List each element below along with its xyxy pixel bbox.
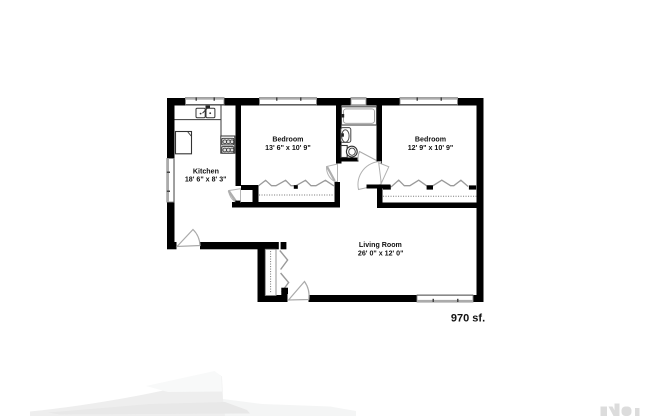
svg-text:26' 0" x 12' 0": 26' 0" x 12' 0" [358,250,404,258]
svg-text:18' 6" x 8' 3": 18' 6" x 8' 3" [185,175,227,183]
svg-text:Living Room: Living Room [359,241,402,249]
svg-text:Kitchen: Kitchen [193,167,219,175]
svg-text:970 sf.: 970 sf. [451,313,485,325]
svg-text:12' 9" x 10' 9": 12' 9" x 10' 9" [408,144,454,152]
svg-text:Bedroom: Bedroom [272,136,303,144]
svg-text:13' 6" x 10' 9": 13' 6" x 10' 9" [265,144,311,152]
svg-text:Bedroom: Bedroom [415,136,446,144]
